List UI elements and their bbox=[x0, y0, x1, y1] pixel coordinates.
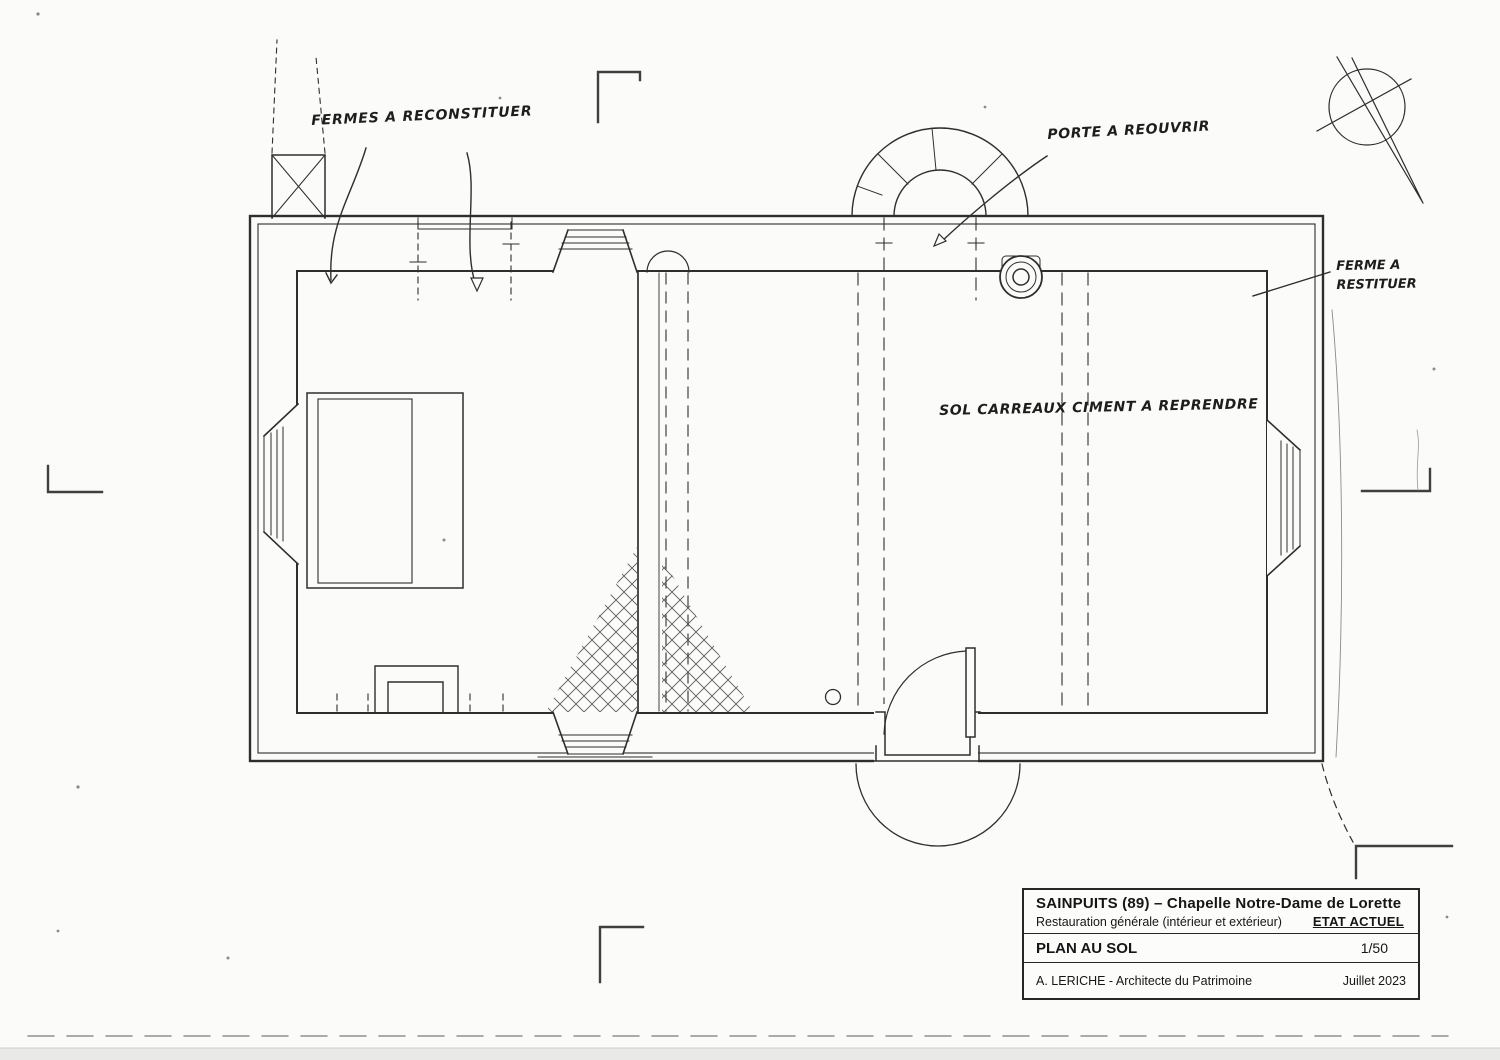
entrance-steps-top bbox=[852, 128, 1028, 216]
project-subtitle: Restauration générale (intérieur et exté… bbox=[1036, 915, 1282, 929]
truss-ticks-left-room bbox=[337, 222, 519, 712]
annotation-truss-single-line2: RESTITUER bbox=[1336, 275, 1417, 295]
floor-drain-circle bbox=[826, 690, 841, 705]
nested-bench bbox=[375, 666, 458, 712]
window-right bbox=[1267, 420, 1300, 576]
scan-specks bbox=[36, 12, 1448, 959]
architect-name: A. LERICHE - Architecte du Patrimoine bbox=[1036, 974, 1252, 988]
title-block-row-author: A. LERICHE - Architecte du Patrimoine Ju… bbox=[1024, 962, 1418, 998]
window-top bbox=[553, 230, 637, 272]
wall-niche bbox=[647, 251, 689, 272]
annotation-truss-single-note: FERME A RESTITUER bbox=[1336, 256, 1417, 295]
bell-gable bbox=[272, 40, 325, 218]
drawing-title: PLAN AU SOL bbox=[1036, 940, 1137, 957]
title-block-row-drawing: PLAN AU SOL 1/50 bbox=[1024, 933, 1418, 962]
project-title: SAINPUITS (89) – Chapelle Notre-Dame de … bbox=[1036, 895, 1406, 912]
title-block-row-project: SAINPUITS (89) – Chapelle Notre-Dame de … bbox=[1024, 890, 1418, 933]
drawing-scale: 1/50 bbox=[1361, 940, 1388, 956]
title-block: SAINPUITS (89) – Chapelle Notre-Dame de … bbox=[1022, 888, 1420, 1000]
building-walls bbox=[250, 216, 1323, 761]
stoup bbox=[1000, 256, 1042, 298]
altar-platform bbox=[307, 393, 463, 588]
scanned-plan-page: FERMES A RECONSTITUER PORTE A REOUVRIR F… bbox=[0, 0, 1500, 1060]
north-arrow-icon bbox=[1317, 57, 1423, 203]
status-label: ETAT ACTUEL bbox=[1313, 914, 1404, 929]
main-door bbox=[856, 648, 1020, 846]
corner-marks bbox=[48, 72, 1452, 982]
annotation-truss-single-line1: FERME A bbox=[1336, 256, 1417, 276]
truss-dashed-lines bbox=[858, 218, 1088, 711]
annotation-leaders bbox=[326, 148, 1330, 296]
window-left bbox=[264, 404, 298, 564]
hatched-floor-areas bbox=[546, 545, 753, 712]
drawing-date: Juillet 2023 bbox=[1343, 974, 1406, 988]
window-bottom bbox=[538, 712, 652, 757]
